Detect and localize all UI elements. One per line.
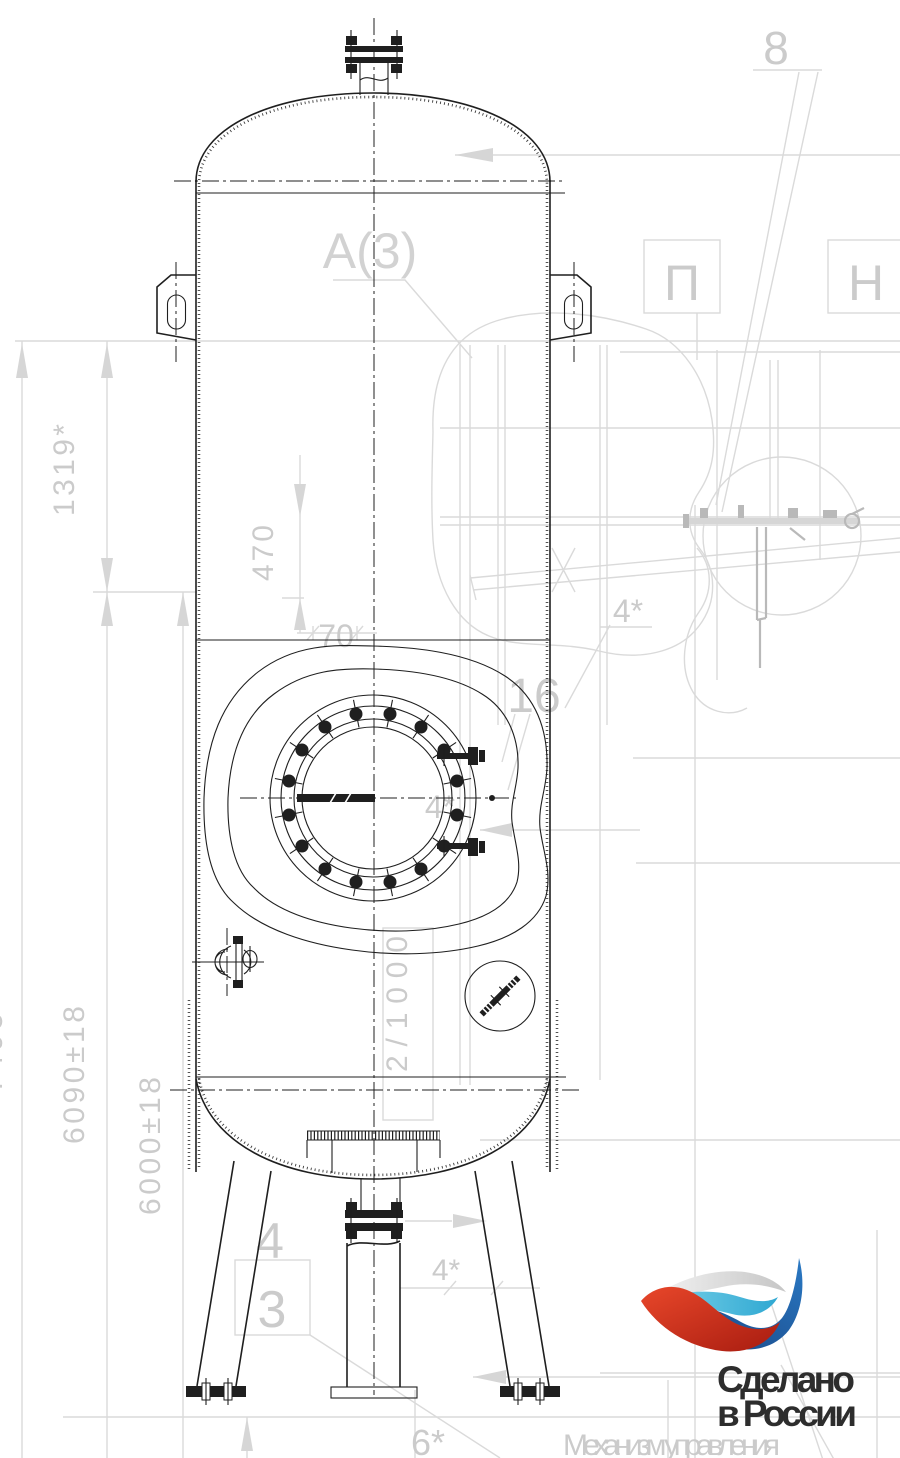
insulation-cutout bbox=[204, 646, 548, 954]
weld-4-manhole-label: 4* bbox=[425, 789, 455, 825]
position-n-label: Н bbox=[848, 255, 884, 311]
callout-16-label: 16 bbox=[507, 670, 560, 723]
ghost-blob-lower bbox=[684, 548, 747, 713]
vessel-drawing: 8 П Н A(3) 1319* 470 70 16 4* 4* 2/1000 … bbox=[0, 0, 900, 1458]
position-p-label: П bbox=[664, 255, 700, 311]
weld-6-bottom-label: 6* bbox=[411, 1422, 445, 1458]
view-label: A(3) bbox=[323, 223, 417, 279]
stud-detail bbox=[465, 961, 535, 1031]
logo-line2: в России bbox=[717, 1393, 857, 1434]
dim-6000: 6000±18 bbox=[134, 1077, 167, 1215]
ghost-slanted-lines bbox=[310, 72, 900, 1458]
manhole-cover-handle bbox=[297, 794, 375, 802]
dim-6090: 6090±18 bbox=[58, 1006, 91, 1144]
davit-bracket-upper bbox=[437, 746, 485, 766]
davit-bracket-lower bbox=[437, 836, 485, 856]
weld-4-upper-label: 4* bbox=[613, 593, 643, 629]
ghost-layer: 8 П Н A(3) 1319* 470 70 16 4* 4* 2/1000 … bbox=[0, 22, 900, 1458]
ghost-vertical-lines bbox=[22, 341, 877, 1458]
support-legs bbox=[186, 1161, 560, 1405]
ghost-detail-circle bbox=[703, 457, 861, 615]
dim-1319: 1319* bbox=[48, 424, 81, 516]
dim-7495: 7495* bbox=[0, 997, 9, 1093]
dim-470: 470 bbox=[247, 525, 280, 581]
control-mechanism bbox=[683, 505, 864, 668]
ghost-callout-boxes bbox=[235, 240, 900, 1335]
centerline-dot bbox=[489, 795, 495, 801]
detail-3-label: 3 bbox=[258, 1281, 287, 1339]
made-in-russia-logo: Сделано в России bbox=[641, 1258, 857, 1434]
side-nozzle bbox=[192, 936, 264, 988]
lifting-lug-right bbox=[550, 275, 591, 340]
weld-4-bottom-label: 4* bbox=[432, 1254, 461, 1287]
engineering-drawing-canvas: 8 П Н A(3) 1319* 470 70 16 4* 4* 2/1000 … bbox=[0, 0, 900, 1458]
ghost-blob-outline bbox=[432, 313, 714, 655]
slope-label: 2/1000 bbox=[381, 936, 414, 1072]
callout-8-label: 8 bbox=[763, 22, 789, 74]
bird-icon bbox=[641, 1258, 802, 1351]
dim-70: 70 bbox=[318, 618, 354, 654]
